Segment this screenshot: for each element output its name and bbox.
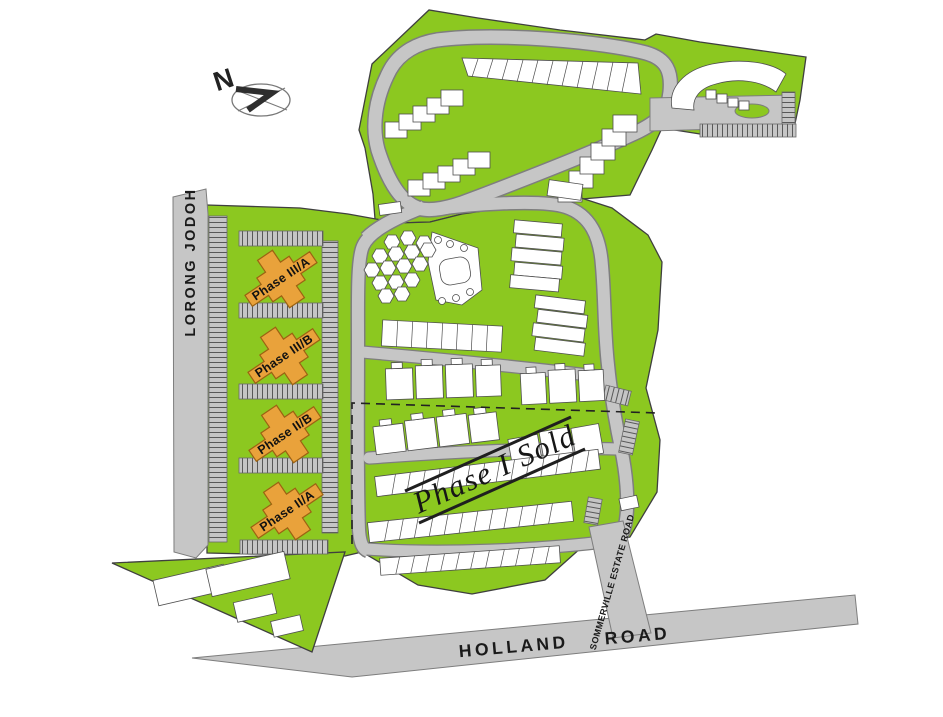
- building-unit: [739, 101, 749, 110]
- small-structure: [439, 298, 446, 305]
- building-unit: [526, 367, 536, 374]
- parking-strip: [700, 124, 796, 137]
- building-unit: [555, 363, 565, 370]
- hex-building: [396, 259, 412, 273]
- building-unit: [548, 369, 577, 403]
- building-unit: [441, 90, 463, 106]
- hex-building: [372, 276, 388, 290]
- building-unit: [415, 365, 443, 399]
- building-unit: [717, 94, 727, 103]
- building-unit: [445, 364, 473, 398]
- building-unit: [520, 372, 547, 404]
- building-unit: [475, 365, 501, 397]
- small-structure: [453, 295, 460, 302]
- parking-strip: [239, 458, 323, 473]
- building-unit: [385, 368, 413, 400]
- small-structure: [435, 237, 442, 244]
- building-unit: [613, 115, 637, 132]
- parking-strip: [322, 241, 338, 533]
- hex-building: [378, 289, 394, 303]
- building-unit: [468, 152, 490, 168]
- hex-building: [420, 243, 436, 257]
- building-unit: [584, 364, 594, 371]
- hex-building: [404, 273, 420, 287]
- apartment-block-a: [509, 220, 567, 292]
- building-unit: [421, 359, 432, 365]
- lorong-jodoh-label: LORONG JODOH: [183, 187, 199, 336]
- semid-row-b: [520, 361, 605, 404]
- compass-n-label: N: [210, 62, 238, 97]
- building-unit: [706, 90, 716, 99]
- building-unit: [436, 413, 469, 446]
- site-plan-page: Phase III/A Phase III/B Phase II/B Phase…: [0, 0, 943, 717]
- hex-building: [380, 261, 396, 275]
- parking-strip: [239, 384, 323, 399]
- small-structure: [467, 289, 474, 296]
- building-unit: [473, 407, 486, 414]
- parking-strip: [209, 216, 227, 542]
- building-unit: [391, 362, 402, 368]
- small-structure: [461, 245, 468, 252]
- building-unit: [468, 412, 499, 443]
- hex-building: [364, 263, 380, 277]
- building-unit: [404, 417, 437, 450]
- hex-building: [400, 231, 416, 245]
- parking-strip: [782, 92, 795, 124]
- parking-strip: [239, 231, 323, 246]
- building-unit: [451, 358, 462, 364]
- building-unit: [728, 98, 738, 107]
- small-structure: [447, 241, 454, 248]
- building-unit: [442, 409, 455, 416]
- hex-building: [394, 287, 410, 301]
- site-plan-map: Phase III/A Phase III/B Phase II/B Phase…: [0, 0, 943, 717]
- building-unit: [411, 413, 424, 420]
- compass-needle-icon: [236, 89, 272, 110]
- north-indicator: N: [210, 62, 290, 116]
- hex-building: [412, 257, 428, 271]
- building-unit: [379, 419, 392, 426]
- building-unit: [373, 423, 406, 454]
- building-unit: [578, 369, 605, 401]
- building-unit: [481, 359, 492, 365]
